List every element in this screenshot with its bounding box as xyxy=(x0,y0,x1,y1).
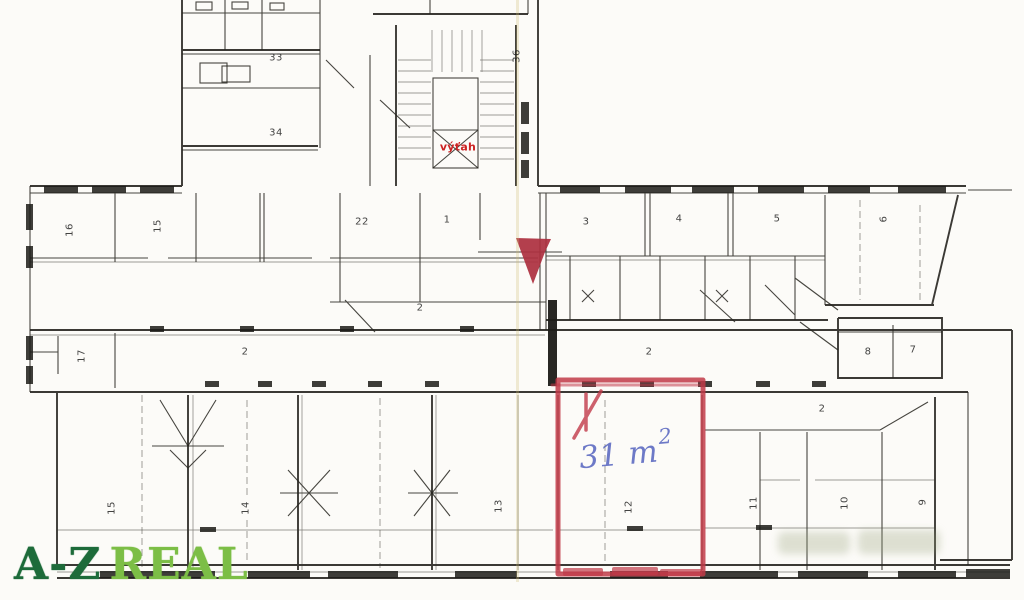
room-label-b12: 12 xyxy=(624,500,635,514)
elevator-label: výťah xyxy=(440,141,476,154)
scan-artifact-line xyxy=(516,0,519,582)
room-label-8: 8 xyxy=(865,347,872,358)
logo: A-ZREAL xyxy=(14,543,249,587)
fixtures xyxy=(196,2,284,83)
highlight-rectangle xyxy=(558,380,703,574)
walls-normal xyxy=(30,0,1012,572)
floorplan-linework xyxy=(0,0,1024,600)
room-label-15: 15 xyxy=(153,219,164,233)
logo-real: REAL xyxy=(110,539,249,590)
floor-plan-scan: 33 34 36 16 15 22 1 3 4 5 6 17 2 2 2 8 7… xyxy=(0,0,1024,600)
walls-heavy xyxy=(30,0,1012,578)
room-label-b10: 10 xyxy=(840,496,851,510)
room-label-5: 5 xyxy=(774,214,781,225)
red-door-swing xyxy=(574,391,601,438)
room-label-b14: 14 xyxy=(241,501,252,515)
corridor-label-2a: 2 xyxy=(242,347,249,358)
area-annotation: 31 m2 xyxy=(578,430,673,476)
room-label-34: 34 xyxy=(269,128,283,139)
corridor-label-2c: 2 xyxy=(646,347,653,358)
logo-az: A-Z xyxy=(14,539,102,590)
red-smear xyxy=(612,567,658,575)
room-label-b15: 15 xyxy=(107,501,118,515)
red-marker-annotations xyxy=(516,238,703,576)
thick-wall-bar xyxy=(548,300,557,386)
room-label-4: 4 xyxy=(676,214,683,225)
scan-smudge xyxy=(858,530,940,554)
corridor-label-2b: 2 xyxy=(417,303,424,314)
corridor-label-2d: 2 xyxy=(819,404,826,415)
elevator-shaft xyxy=(433,78,478,168)
room-label-16: 16 xyxy=(65,223,76,237)
red-smear xyxy=(563,568,603,576)
room-label-b11: 11 xyxy=(749,496,760,510)
room-label-1: 1 xyxy=(444,215,451,226)
area-annotation-text: 31 m xyxy=(578,434,660,477)
room-label-b13: 13 xyxy=(494,499,505,513)
red-smear xyxy=(660,569,702,576)
room-label-b9: 9 xyxy=(918,499,929,506)
room-label-36: 36 xyxy=(512,49,523,63)
room-label-3: 3 xyxy=(583,217,590,228)
area-annotation-sup: 2 xyxy=(657,424,672,449)
room-label-33: 33 xyxy=(269,53,283,64)
room-label-17: 17 xyxy=(77,349,88,363)
room-label-22: 22 xyxy=(355,217,369,228)
room-label-7: 7 xyxy=(910,345,917,356)
room-label-6: 6 xyxy=(879,216,890,223)
scan-smudge xyxy=(778,532,850,554)
